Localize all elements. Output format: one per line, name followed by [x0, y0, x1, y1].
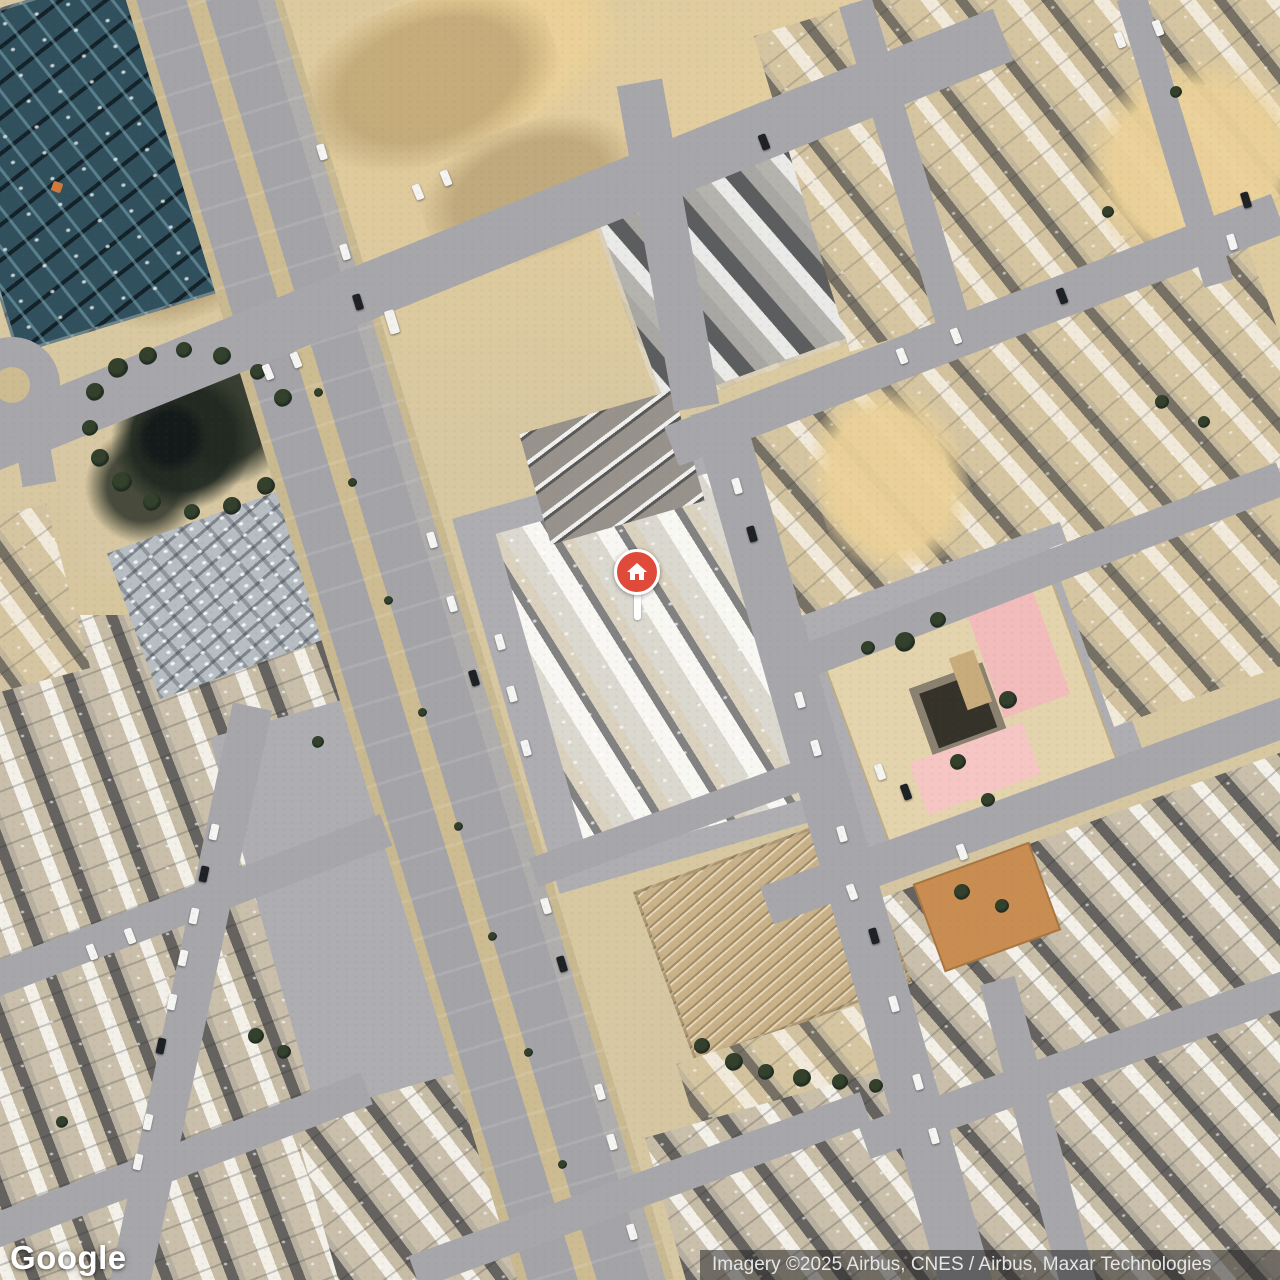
car — [895, 347, 908, 365]
car — [85, 943, 98, 961]
car — [556, 955, 568, 973]
car — [846, 883, 859, 901]
car — [132, 1153, 143, 1170]
car — [506, 685, 518, 703]
car — [956, 843, 969, 861]
car — [166, 993, 177, 1010]
car — [606, 1133, 618, 1151]
car — [439, 169, 452, 187]
car — [1226, 233, 1238, 251]
car — [888, 995, 900, 1013]
car — [142, 1113, 153, 1130]
car — [261, 363, 274, 381]
car — [949, 327, 962, 345]
car — [757, 133, 770, 151]
car — [1151, 19, 1164, 37]
car — [446, 595, 458, 613]
car — [426, 531, 438, 549]
imagery-attribution: Imagery ©2025 Airbus, CNES / Airbus, Max… — [700, 1250, 1280, 1280]
car — [289, 351, 302, 369]
car — [868, 927, 880, 945]
bus — [384, 309, 401, 335]
car — [626, 1223, 638, 1241]
car-layer — [0, 0, 1280, 1280]
car — [874, 763, 887, 781]
car — [177, 949, 188, 966]
satellite-map-canvas[interactable]: Google Imagery ©2025 Airbus, CNES / Airb… — [0, 0, 1280, 1280]
car — [928, 1127, 940, 1145]
car — [1055, 287, 1068, 305]
car — [411, 183, 424, 201]
car — [540, 897, 552, 915]
marker-circle — [614, 549, 660, 595]
car — [316, 143, 328, 161]
car — [198, 865, 209, 882]
car — [900, 783, 913, 801]
home-icon — [625, 560, 649, 584]
car — [494, 633, 506, 651]
car — [208, 823, 219, 840]
car — [1113, 31, 1126, 49]
car — [794, 691, 806, 709]
car — [468, 669, 480, 687]
car — [123, 927, 136, 945]
car — [188, 907, 199, 924]
car — [836, 825, 848, 843]
car — [520, 739, 532, 757]
car — [339, 243, 351, 261]
car — [731, 477, 743, 495]
car — [912, 1073, 924, 1091]
car — [155, 1037, 166, 1054]
car — [746, 525, 758, 543]
google-logo[interactable]: Google — [10, 1239, 127, 1277]
attribution-text: Imagery ©2025 Airbus, CNES / Airbus, Max… — [712, 1254, 1211, 1275]
car — [594, 1083, 606, 1101]
car — [1240, 191, 1252, 209]
car — [352, 293, 364, 311]
car — [810, 739, 822, 757]
